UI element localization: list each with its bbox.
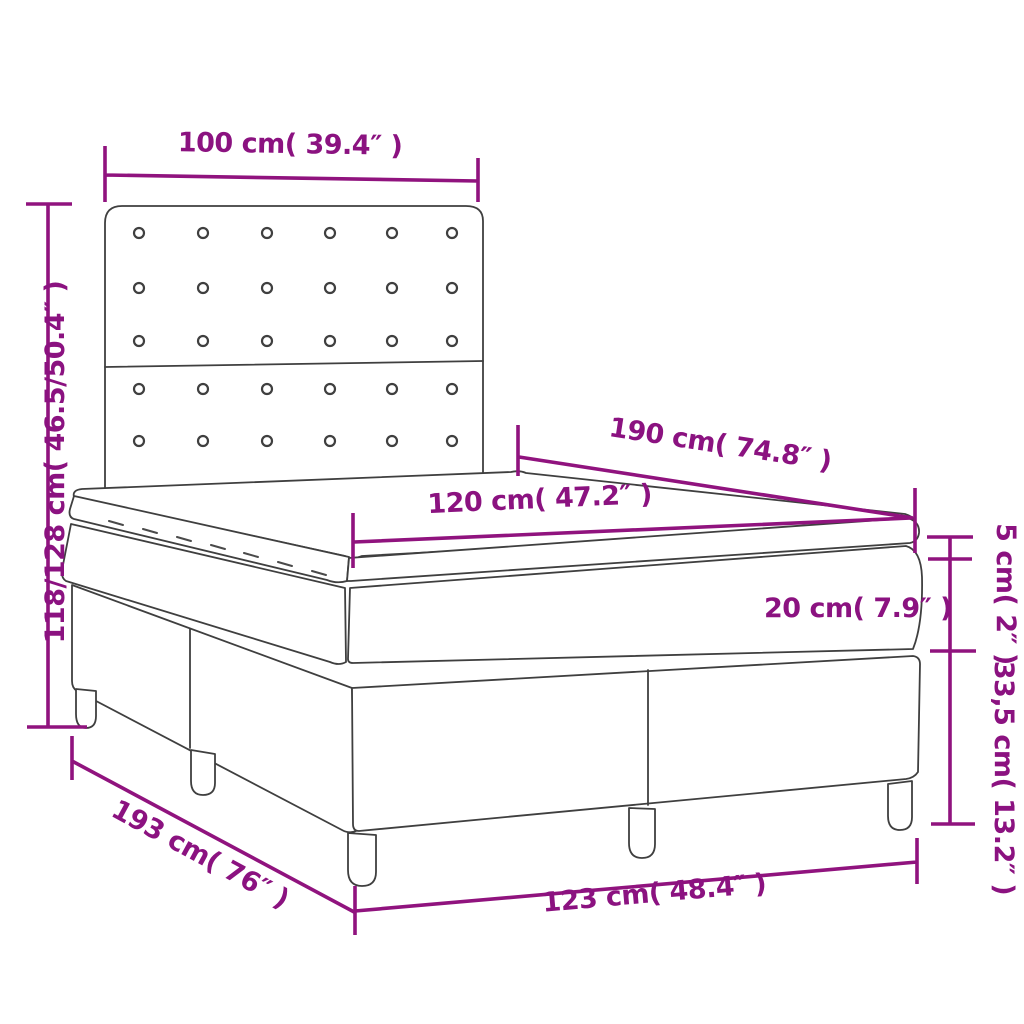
dimension-label-base-height: 33,5 cm( 13.2″ ) [988, 661, 1019, 895]
headboard-button [325, 336, 335, 346]
base-front-face [352, 656, 920, 831]
dimension-headboard-width: 100 cm( 39.4″ ) [105, 127, 478, 202]
leg-side-middle [191, 750, 215, 795]
headboard-button [447, 336, 457, 346]
headboard-button [262, 384, 272, 394]
dimension-right-stack: 5 cm( 2″ ) 33,5 cm( 13.2″ ) [927, 523, 1021, 895]
headboard-button [134, 384, 144, 394]
headboard-button [447, 436, 457, 446]
headboard-button [198, 336, 208, 346]
headboard-button [134, 436, 144, 446]
headboard-button [262, 436, 272, 446]
diagram-canvas: 100 cm( 39.4″ ) 118/128 cm( 46.5/50.4″ )… [0, 0, 1024, 1024]
headboard-button [134, 283, 144, 293]
headboard-button [325, 436, 335, 446]
headboard-button [325, 283, 335, 293]
headboard-button [325, 228, 335, 238]
leg-back-left [76, 689, 96, 728]
headboard-button [134, 336, 144, 346]
dimension-label-overall-height: 118/128 cm( 46.5/50.4″ ) [40, 281, 71, 644]
leg-front-right [888, 781, 912, 830]
headboard-button [447, 283, 457, 293]
headboard-button [447, 384, 457, 394]
headboard-button [387, 283, 397, 293]
headboard-button [262, 283, 272, 293]
headboard-button [447, 228, 457, 238]
headboard-button [134, 228, 144, 238]
headboard-outline [105, 206, 483, 502]
headboard-button [387, 436, 397, 446]
headboard-button [387, 384, 397, 394]
headboard-button [325, 384, 335, 394]
dimension-label-frame-width: 123 cm( 48.4″ ) [541, 868, 767, 918]
headboard-button [198, 283, 208, 293]
headboard-button [262, 228, 272, 238]
dimension-label-mattress-length: 190 cm( 74.8″ ) [607, 412, 834, 477]
dimension-label-headboard-width: 100 cm( 39.4″ ) [178, 127, 403, 162]
dimension-line [927, 537, 976, 824]
headboard-button [262, 336, 272, 346]
dimension-label-topper-thickness: 5 cm( 2″ ) [990, 523, 1021, 665]
leg-front-middle [629, 808, 655, 858]
leg-front-corner [348, 833, 376, 886]
headboard-button [387, 336, 397, 346]
headboard [105, 206, 483, 502]
headboard-button [387, 228, 397, 238]
dimension-label-mattress-thickness: 20 cm( 7.9″ ) [764, 593, 952, 624]
headboard-button [198, 384, 208, 394]
headboard-button [198, 436, 208, 446]
headboard-button [198, 228, 208, 238]
dimension-label-frame-length: 193 cm( 76″ ) [106, 794, 293, 915]
bed-dimension-diagram: 100 cm( 39.4″ ) 118/128 cm( 46.5/50.4″ )… [0, 0, 1024, 1024]
